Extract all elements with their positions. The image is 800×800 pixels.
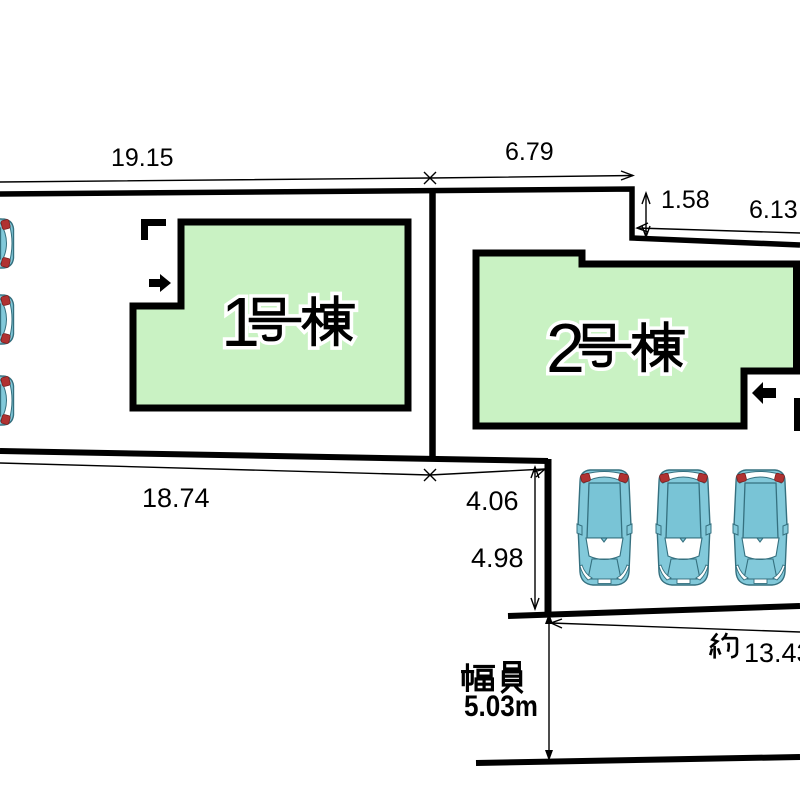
svg-text:18.74: 18.74 — [142, 483, 210, 513]
svg-text:6.13: 6.13 — [749, 196, 798, 224]
svg-text:4.98: 4.98 — [471, 543, 524, 573]
svg-text:1.58: 1.58 — [661, 186, 710, 214]
svg-text:6.79: 6.79 — [505, 138, 554, 166]
svg-text:4.06: 4.06 — [466, 486, 519, 516]
svg-text:5.03m: 5.03m — [464, 690, 538, 723]
svg-text:19.15: 19.15 — [111, 144, 174, 172]
svg-text:13.43: 13.43 — [744, 638, 800, 668]
